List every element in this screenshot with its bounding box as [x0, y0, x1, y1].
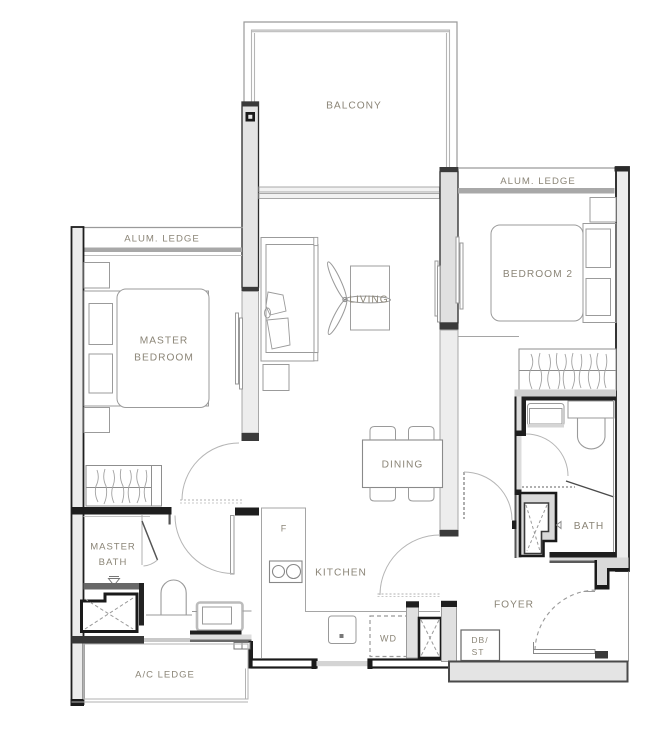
- svg-text:ST: ST: [472, 647, 485, 657]
- svg-text:BATH: BATH: [99, 557, 128, 568]
- svg-text:MASTER: MASTER: [140, 336, 188, 347]
- svg-text:DB/: DB/: [471, 635, 488, 645]
- svg-text:LIVING: LIVING: [349, 295, 388, 306]
- svg-text:ALUM. LEDGE: ALUM. LEDGE: [124, 234, 200, 245]
- svg-text:BATH: BATH: [574, 521, 604, 532]
- svg-text:FOYER: FOYER: [494, 600, 534, 611]
- svg-text:KITCHEN: KITCHEN: [315, 568, 367, 579]
- svg-text:BEDROOM: BEDROOM: [134, 353, 194, 364]
- svg-text:WD: WD: [380, 634, 397, 644]
- svg-text:ALUM. LEDGE: ALUM. LEDGE: [500, 176, 576, 187]
- svg-text:BALCONY: BALCONY: [326, 101, 382, 112]
- svg-text:MASTER: MASTER: [90, 542, 136, 553]
- svg-text:A/C LEDGE: A/C LEDGE: [135, 670, 195, 681]
- svg-text:BEDROOM 2: BEDROOM 2: [503, 269, 573, 280]
- svg-text:DINING: DINING: [382, 460, 424, 471]
- svg-text:F: F: [281, 524, 288, 534]
